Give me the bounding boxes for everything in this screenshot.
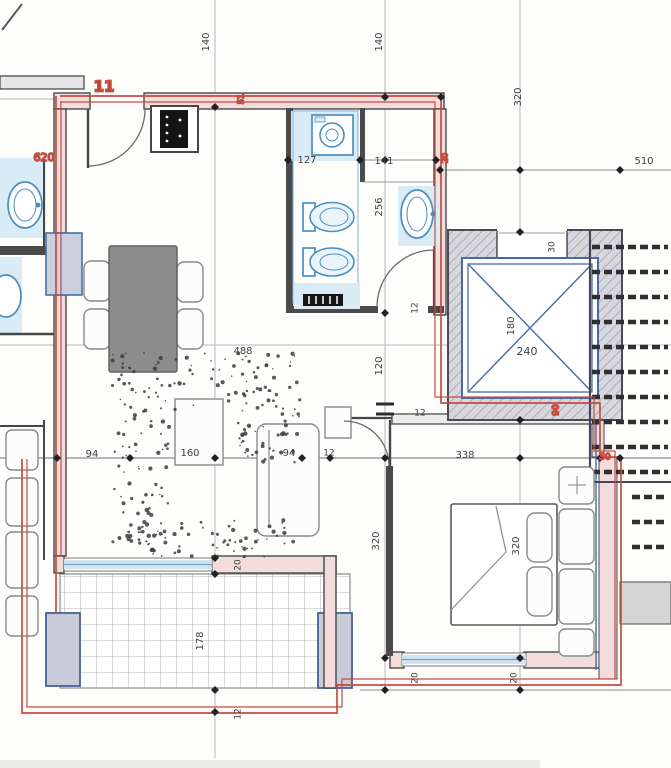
stair-landing [620, 582, 671, 624]
dimension-label: 90 [552, 404, 562, 416]
chair [177, 262, 203, 302]
dimension-label: 141 [374, 156, 393, 167]
dimension-label: 12 [411, 302, 421, 313]
dimension-label: 127 [297, 155, 316, 166]
dimension-label: 256 [374, 197, 385, 216]
dimension-label: 120 [374, 356, 385, 375]
scan-shadow [0, 760, 540, 768]
dimension-label: 20 [234, 559, 244, 571]
balcony [46, 574, 352, 688]
neighbor-wall [0, 76, 84, 89]
dimension-label: 488 [233, 346, 252, 357]
wardrobe-door [559, 569, 594, 624]
sofa [257, 424, 319, 536]
dimension-label: 510 [634, 156, 653, 167]
dimension-label: 160 [180, 448, 199, 459]
dimension-label: 140 [374, 32, 385, 51]
dimension-label: 178 [195, 631, 206, 650]
dimension-label: 11 [94, 78, 115, 96]
chair [84, 261, 110, 301]
hall-cabinet [325, 407, 351, 438]
bathroom [291, 111, 442, 309]
dimension-label: 20 [441, 153, 450, 163]
wall-duct [46, 233, 82, 295]
wardrobe-door [559, 509, 594, 564]
dimension-label: 12 [234, 708, 244, 719]
dimension-label: 12 [323, 449, 334, 459]
dimension-label: 620 [34, 151, 55, 164]
dimension-label: 20 [510, 672, 520, 684]
dimension-label: 12 [414, 409, 425, 419]
bathroom-door-arc [377, 250, 434, 307]
pillow [527, 513, 552, 562]
balcony-tiles [60, 574, 350, 688]
chair [84, 309, 110, 349]
entry [88, 106, 198, 168]
dimension-label: 320 [513, 87, 524, 106]
bidet [310, 248, 354, 276]
chair [177, 309, 203, 349]
dimension-label: 20 [411, 672, 421, 684]
entry-door-arc [88, 109, 145, 166]
dimension-label: 338 [455, 450, 474, 461]
balcony-pillar-left [46, 613, 80, 686]
floor-plan-page: 1114014032051062051201271412563018024090… [0, 0, 671, 768]
living-room-furniture [111, 351, 351, 558]
dimension-label: 180 [506, 316, 517, 335]
dimension-label: 51 [237, 94, 246, 104]
dimension-label: 320 [511, 536, 522, 555]
pillow [527, 567, 552, 616]
toilet [310, 203, 354, 232]
dimension-label: 320 [371, 531, 382, 550]
dimension-label: 94 [283, 448, 296, 459]
dimension-label: 30 [548, 241, 558, 253]
nightstand [559, 629, 594, 656]
corner-slash [2, 4, 22, 30]
floor-plan-drawing: 1114014032051062051201271412563018024090… [0, 0, 671, 768]
dimension-label: 94 [86, 449, 99, 460]
dimension-label: 240 [517, 345, 538, 358]
dimension-label: 30 [599, 453, 611, 463]
dimension-label: 140 [201, 32, 212, 51]
